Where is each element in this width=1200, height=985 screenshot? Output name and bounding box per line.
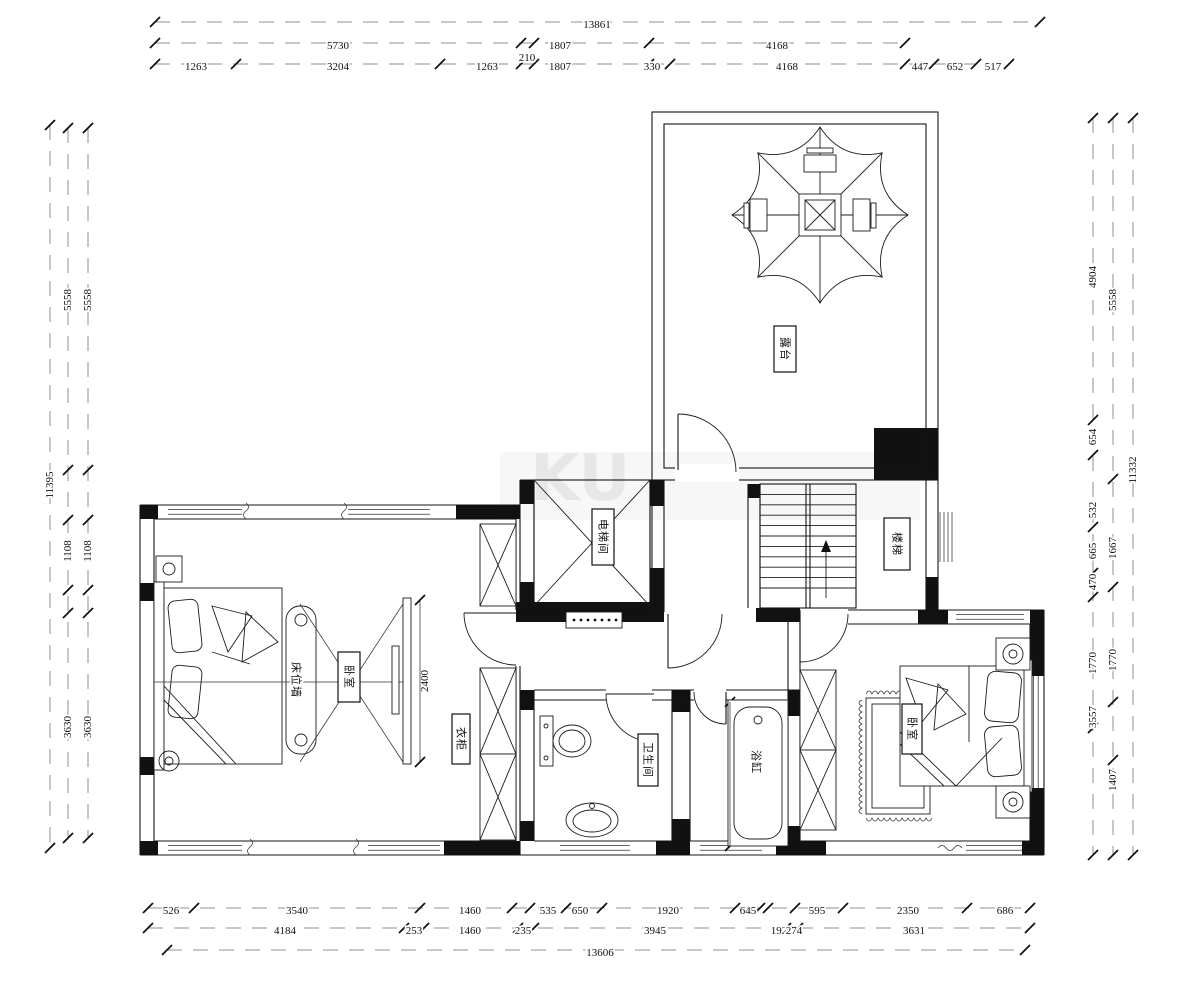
threshold-dot [573, 619, 576, 622]
rug-fringe [866, 691, 902, 694]
wall-solid [926, 577, 938, 610]
tv-wall-panel [403, 598, 411, 764]
wall-solid [672, 690, 690, 712]
patio-chair [744, 203, 749, 228]
dimension-tick [900, 38, 910, 48]
dimension-tick [1088, 522, 1098, 532]
wall-solid [140, 841, 158, 855]
dimension-label: 3204 [327, 61, 350, 73]
dimension-label: 3557 [1087, 706, 1099, 729]
threshold-dot [601, 619, 604, 622]
watermark-text: KU [530, 442, 630, 516]
dimension-label: 5558 [62, 289, 74, 312]
dimension-label: 253 [406, 925, 423, 937]
dimension-label: 3630 [62, 716, 74, 739]
dimension-label: 1770 [1087, 652, 1099, 675]
pillow [167, 599, 202, 654]
dimension-label: 1108 [62, 540, 74, 562]
dimension-label: 11332 [1127, 456, 1139, 483]
threshold-dot [587, 619, 590, 622]
dimension-label: 1263 [476, 61, 499, 73]
room-label: 浴缸 [750, 750, 764, 774]
room-label: 卧室 [343, 665, 357, 689]
bed-headboard [1024, 660, 1032, 792]
patio-chair [750, 199, 767, 231]
dimension-label: 2350 [897, 905, 920, 917]
dimension-label: 1770 [1107, 649, 1119, 672]
toilet-tank [540, 716, 553, 766]
dimension-label: 595 [809, 905, 826, 917]
rug-fringe [859, 700, 862, 814]
dimension-tick [45, 843, 55, 853]
wall-solid [140, 757, 154, 775]
dimension-label: 526 [163, 905, 180, 917]
patio-chair [871, 203, 876, 228]
room-label: 床位墙 [290, 662, 304, 698]
nightstand [996, 638, 1030, 670]
tv-screen [392, 646, 399, 714]
dimension-label: 1263 [185, 61, 208, 73]
dimension-label: 517 [985, 61, 1002, 73]
dimension-label: 1667 [1107, 537, 1119, 560]
dimension-label: 654 [1087, 428, 1099, 445]
dimension-label: 3631 [903, 925, 925, 937]
threshold-dot [608, 619, 611, 622]
bedside-table [156, 556, 182, 582]
wall-solid [520, 821, 534, 841]
dimension-label: 2400 [419, 670, 431, 693]
dimension-tick [63, 585, 73, 595]
wall-solid [672, 819, 690, 841]
wall-solid [140, 505, 158, 519]
dimension-label: 13606 [586, 947, 614, 959]
dimension-tick [1025, 923, 1035, 933]
balcony-inner-wall [664, 124, 926, 468]
dimension-label: 4184 [274, 925, 297, 937]
dimension-label: 1108 [82, 540, 94, 562]
door-swing-arc [464, 613, 516, 665]
wall-solid [520, 690, 534, 710]
balcony-outer-wall [652, 112, 938, 480]
room-label: 卧室 [906, 717, 920, 741]
pillow [984, 671, 1022, 724]
floor-plan-canvas: KU13861573021018074168126332041263180733… [0, 0, 1200, 985]
patio-chair [807, 148, 833, 153]
dimension-label: 1920 [657, 905, 680, 917]
bed-headboard [154, 582, 164, 770]
wall-solid [788, 690, 800, 716]
wall-solid [748, 484, 760, 498]
dimension-tick [189, 903, 199, 913]
wall-solid [1022, 841, 1044, 855]
patio-chair [804, 155, 836, 172]
patio-chair [853, 199, 870, 231]
dimension-label: 645 [740, 905, 757, 917]
nightstand [996, 786, 1030, 818]
wall-solid [756, 608, 800, 622]
dimension-tick [665, 59, 675, 69]
dimension-label: 3630 [82, 716, 94, 739]
room-label: 露台 [779, 337, 793, 361]
dimension-label: 686 [997, 905, 1014, 917]
dimension-label: 1807 [549, 40, 572, 52]
dimension-tick [900, 59, 910, 69]
dimension-label: 210 [519, 52, 536, 64]
dimension-label: 650 [572, 905, 589, 917]
dimension-label: 5558 [1107, 289, 1119, 312]
dimension-label: 532 [1087, 502, 1099, 519]
dimension-label: 5558 [82, 289, 94, 312]
dimension-tick [838, 903, 848, 913]
floor-plan-drawing: KU13861573021018074168126332041263180733… [0, 0, 1200, 985]
door-swing-arc [694, 692, 726, 724]
wall-solid [456, 505, 520, 519]
wall-solid [444, 841, 520, 855]
dimension-label: 1460 [459, 925, 482, 937]
dimension-label: 4904 [1087, 266, 1099, 289]
dimension-tick [1035, 17, 1045, 27]
wall-break-squiggle [938, 846, 962, 851]
dimension-label: 470 [1087, 573, 1099, 590]
dimension-tick [1020, 945, 1030, 955]
door-swing-arc [800, 614, 848, 662]
dimension-label: 235 [515, 925, 532, 937]
dimension-label: 4168 [776, 61, 799, 73]
dimension-label: 1407 [1107, 769, 1119, 792]
rug-fringe [866, 818, 932, 821]
room-label: 卫生间 [642, 742, 656, 778]
dimension-tick [1025, 903, 1035, 913]
wall-solid [800, 841, 826, 855]
dimension-label: 5730 [327, 40, 350, 52]
door-opening [675, 464, 739, 482]
dimension-label: 11395 [44, 471, 56, 499]
threshold-dot [615, 619, 618, 622]
dimension-label: 4168 [766, 40, 789, 52]
room-label: 衣柜 [455, 727, 469, 751]
dimension-label: 3540 [286, 905, 309, 917]
dimension-label: 535 [540, 905, 557, 917]
dimension-label: 13861 [583, 19, 611, 31]
dimension-label: 652 [947, 61, 964, 73]
dimension-tick [83, 585, 93, 595]
room-label: 电梯间 [597, 519, 610, 555]
dimension-label: 1807 [549, 61, 572, 73]
room-label: 楼梯 [891, 532, 905, 556]
threshold-dot [580, 619, 583, 622]
dimension-tick [1004, 59, 1014, 69]
dimension-label: 447 [912, 61, 929, 73]
wall-solid [520, 480, 534, 504]
door-swing-arc [668, 614, 722, 668]
wall-solid [140, 583, 154, 601]
threshold-dot [594, 619, 597, 622]
dimension-label: 3945 [644, 925, 667, 937]
wall-solid [918, 610, 948, 624]
wall-solid [656, 841, 690, 855]
dimension-label: 1460 [459, 905, 482, 917]
dimension-label: 665 [1087, 542, 1099, 559]
pillow [167, 665, 202, 720]
wall-solid [874, 428, 938, 480]
dimension-label: 274 [786, 925, 803, 937]
dimension-label: 330 [644, 61, 661, 73]
